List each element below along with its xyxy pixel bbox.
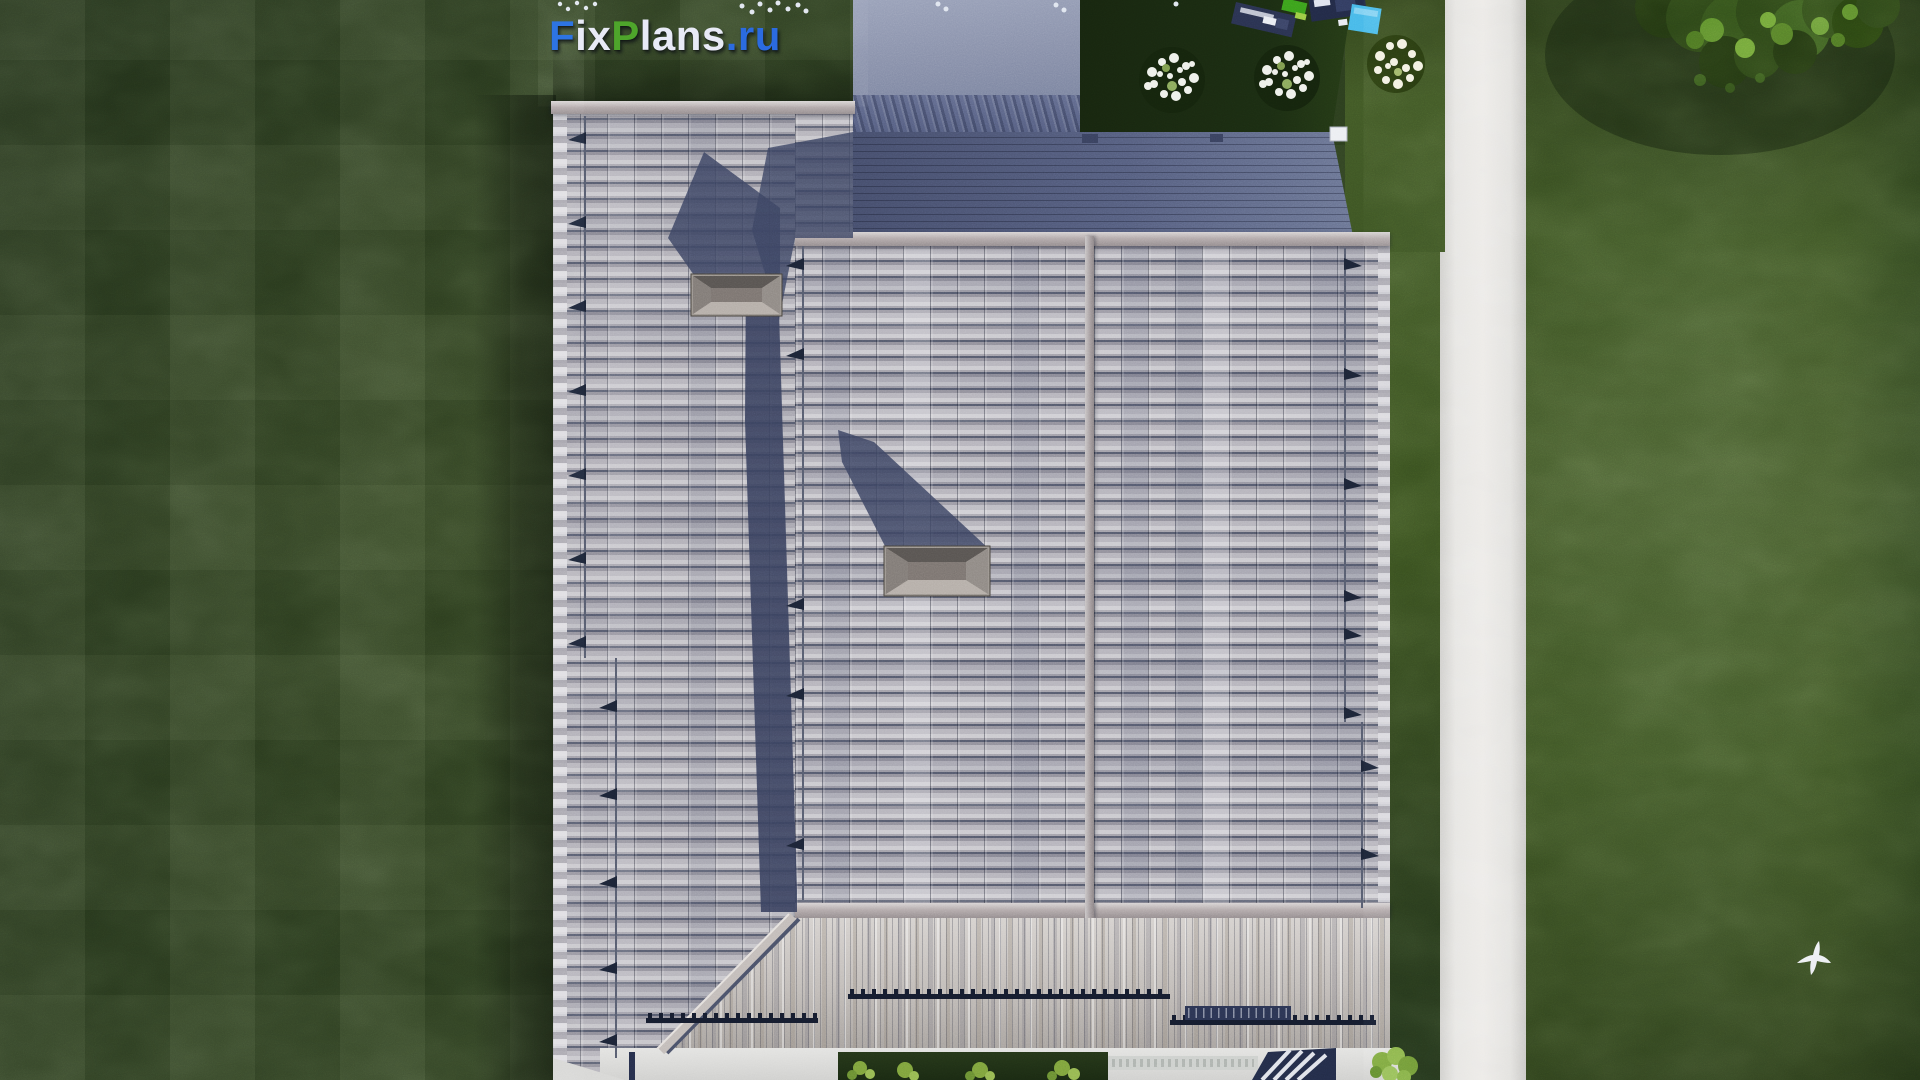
scene-details (0, 0, 1920, 1080)
flying-bird (1797, 941, 1831, 975)
flower-bush-1 (1139, 47, 1205, 113)
snow-guard-bars (646, 992, 1376, 1025)
porch-hip-fascia (657, 914, 799, 1053)
deck-table (1330, 127, 1347, 141)
roof-shadows (668, 132, 988, 912)
patio-corner-west (553, 1058, 625, 1080)
bush-southeast (1370, 1047, 1418, 1080)
playground-equipment (1231, 0, 1382, 37)
deck-planters (1082, 127, 1347, 143)
logo-segment-p: P (611, 12, 640, 59)
logo-segment-ru: .ru (726, 12, 781, 59)
chimney-shadow-1 (668, 152, 780, 278)
flower-bush-2 (1254, 45, 1320, 111)
patio-post (629, 1052, 635, 1080)
skylight-hatch-2 (884, 546, 990, 596)
playground-green-panel (1281, 0, 1307, 15)
patio-hedge-bushes (847, 1060, 1080, 1080)
skylight-hatch-1 (691, 274, 782, 316)
porch-roof-panel (1185, 1006, 1291, 1020)
logo-segment-f: F (549, 12, 575, 59)
chimney-shadow-2 (838, 430, 988, 552)
aerial-render-scene: FixPlans.ru (0, 0, 1920, 1080)
tree-canopy (1545, 0, 1900, 155)
playground-blue-panel (1348, 4, 1382, 34)
flower-bush-3 (1367, 35, 1425, 93)
logo-segment-lans: lans (640, 12, 726, 59)
patio-details (553, 1047, 1418, 1080)
logo-segment-ix: ix (575, 12, 611, 59)
watermark-logo: FixPlans.ru (549, 12, 781, 60)
roof-valley-shadow (745, 280, 797, 912)
